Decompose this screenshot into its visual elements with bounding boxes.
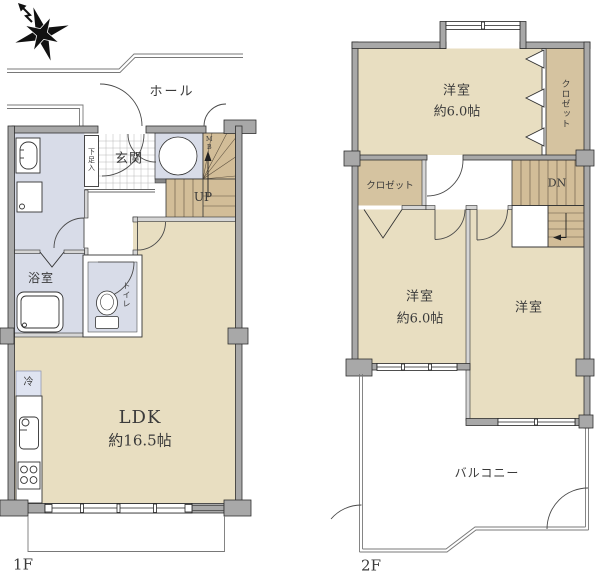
pillar [346,359,372,376]
staircase-down [512,160,584,247]
stair-void [512,206,548,248]
bedroom-left-floor [358,210,466,364]
refrigerator-label: 冷 [24,378,34,388]
bay-window [446,22,520,30]
bedroom-top-label: 洋室 [443,85,471,98]
vanity-sink-icon [16,138,40,173]
terrace-outline [28,516,225,552]
ldk-size-label: 約16.5帖 [108,434,171,449]
balcony-door [547,488,588,529]
hall2-floor [426,160,512,206]
meter-box-label: MB [206,135,213,151]
bedroom-left-label: 洋室 [406,291,434,304]
genkan-label: 玄関 [115,153,143,166]
stairs-down-label: DN [548,178,566,189]
closet-mid-label: クロゼット [366,181,414,191]
pillar [344,151,360,166]
hall-label: ホール [149,86,194,99]
bathroom-label: 浴室 [28,272,54,284]
shoe-cabinet-label: 下足入 [88,148,95,172]
stairs-up-label: UP [194,191,212,203]
bedroom-left-size-label: 約6.0帖 [397,313,444,326]
round-fixture-icon [159,137,197,175]
neighbor-balcony-door [331,505,362,519]
pillar [228,328,248,344]
floor2-label: 2F [361,559,381,574]
compass-icon [7,0,78,69]
bedroom-left-window [377,364,457,371]
bathtub-icon [17,292,63,332]
pillar [0,500,28,516]
pillar [579,415,593,428]
toilet-room [83,255,142,337]
bedroom-right-window [498,419,575,426]
floor1-label: 1F [13,558,33,573]
toilet-label: トイレ [122,282,130,309]
bedroom-right-label: 洋室 [515,302,543,315]
washing-machine-icon [17,182,42,212]
kitchen-counter [16,396,42,503]
balcony-label: バルコニー [455,467,520,479]
bay-window-alcove [446,29,520,49]
kitchen-area [16,371,42,503]
bedroom-top-size-label: 約6.0帖 [434,106,481,119]
floor-plan-drawing [0,0,600,585]
floor-plan-image: ホール 玄関 下足入 MB UP 浴室 トイレ 冷 LDK 約16.5帖 1F … [0,0,600,585]
site-boundary-lines [7,54,243,126]
pillar [576,150,594,166]
pillar [224,500,251,516]
ldk-label: LDK [119,409,162,427]
closet-top-label: クロゼット [560,79,569,129]
toilet-icon [96,291,119,329]
pillar [0,328,14,344]
pillar [576,359,594,376]
